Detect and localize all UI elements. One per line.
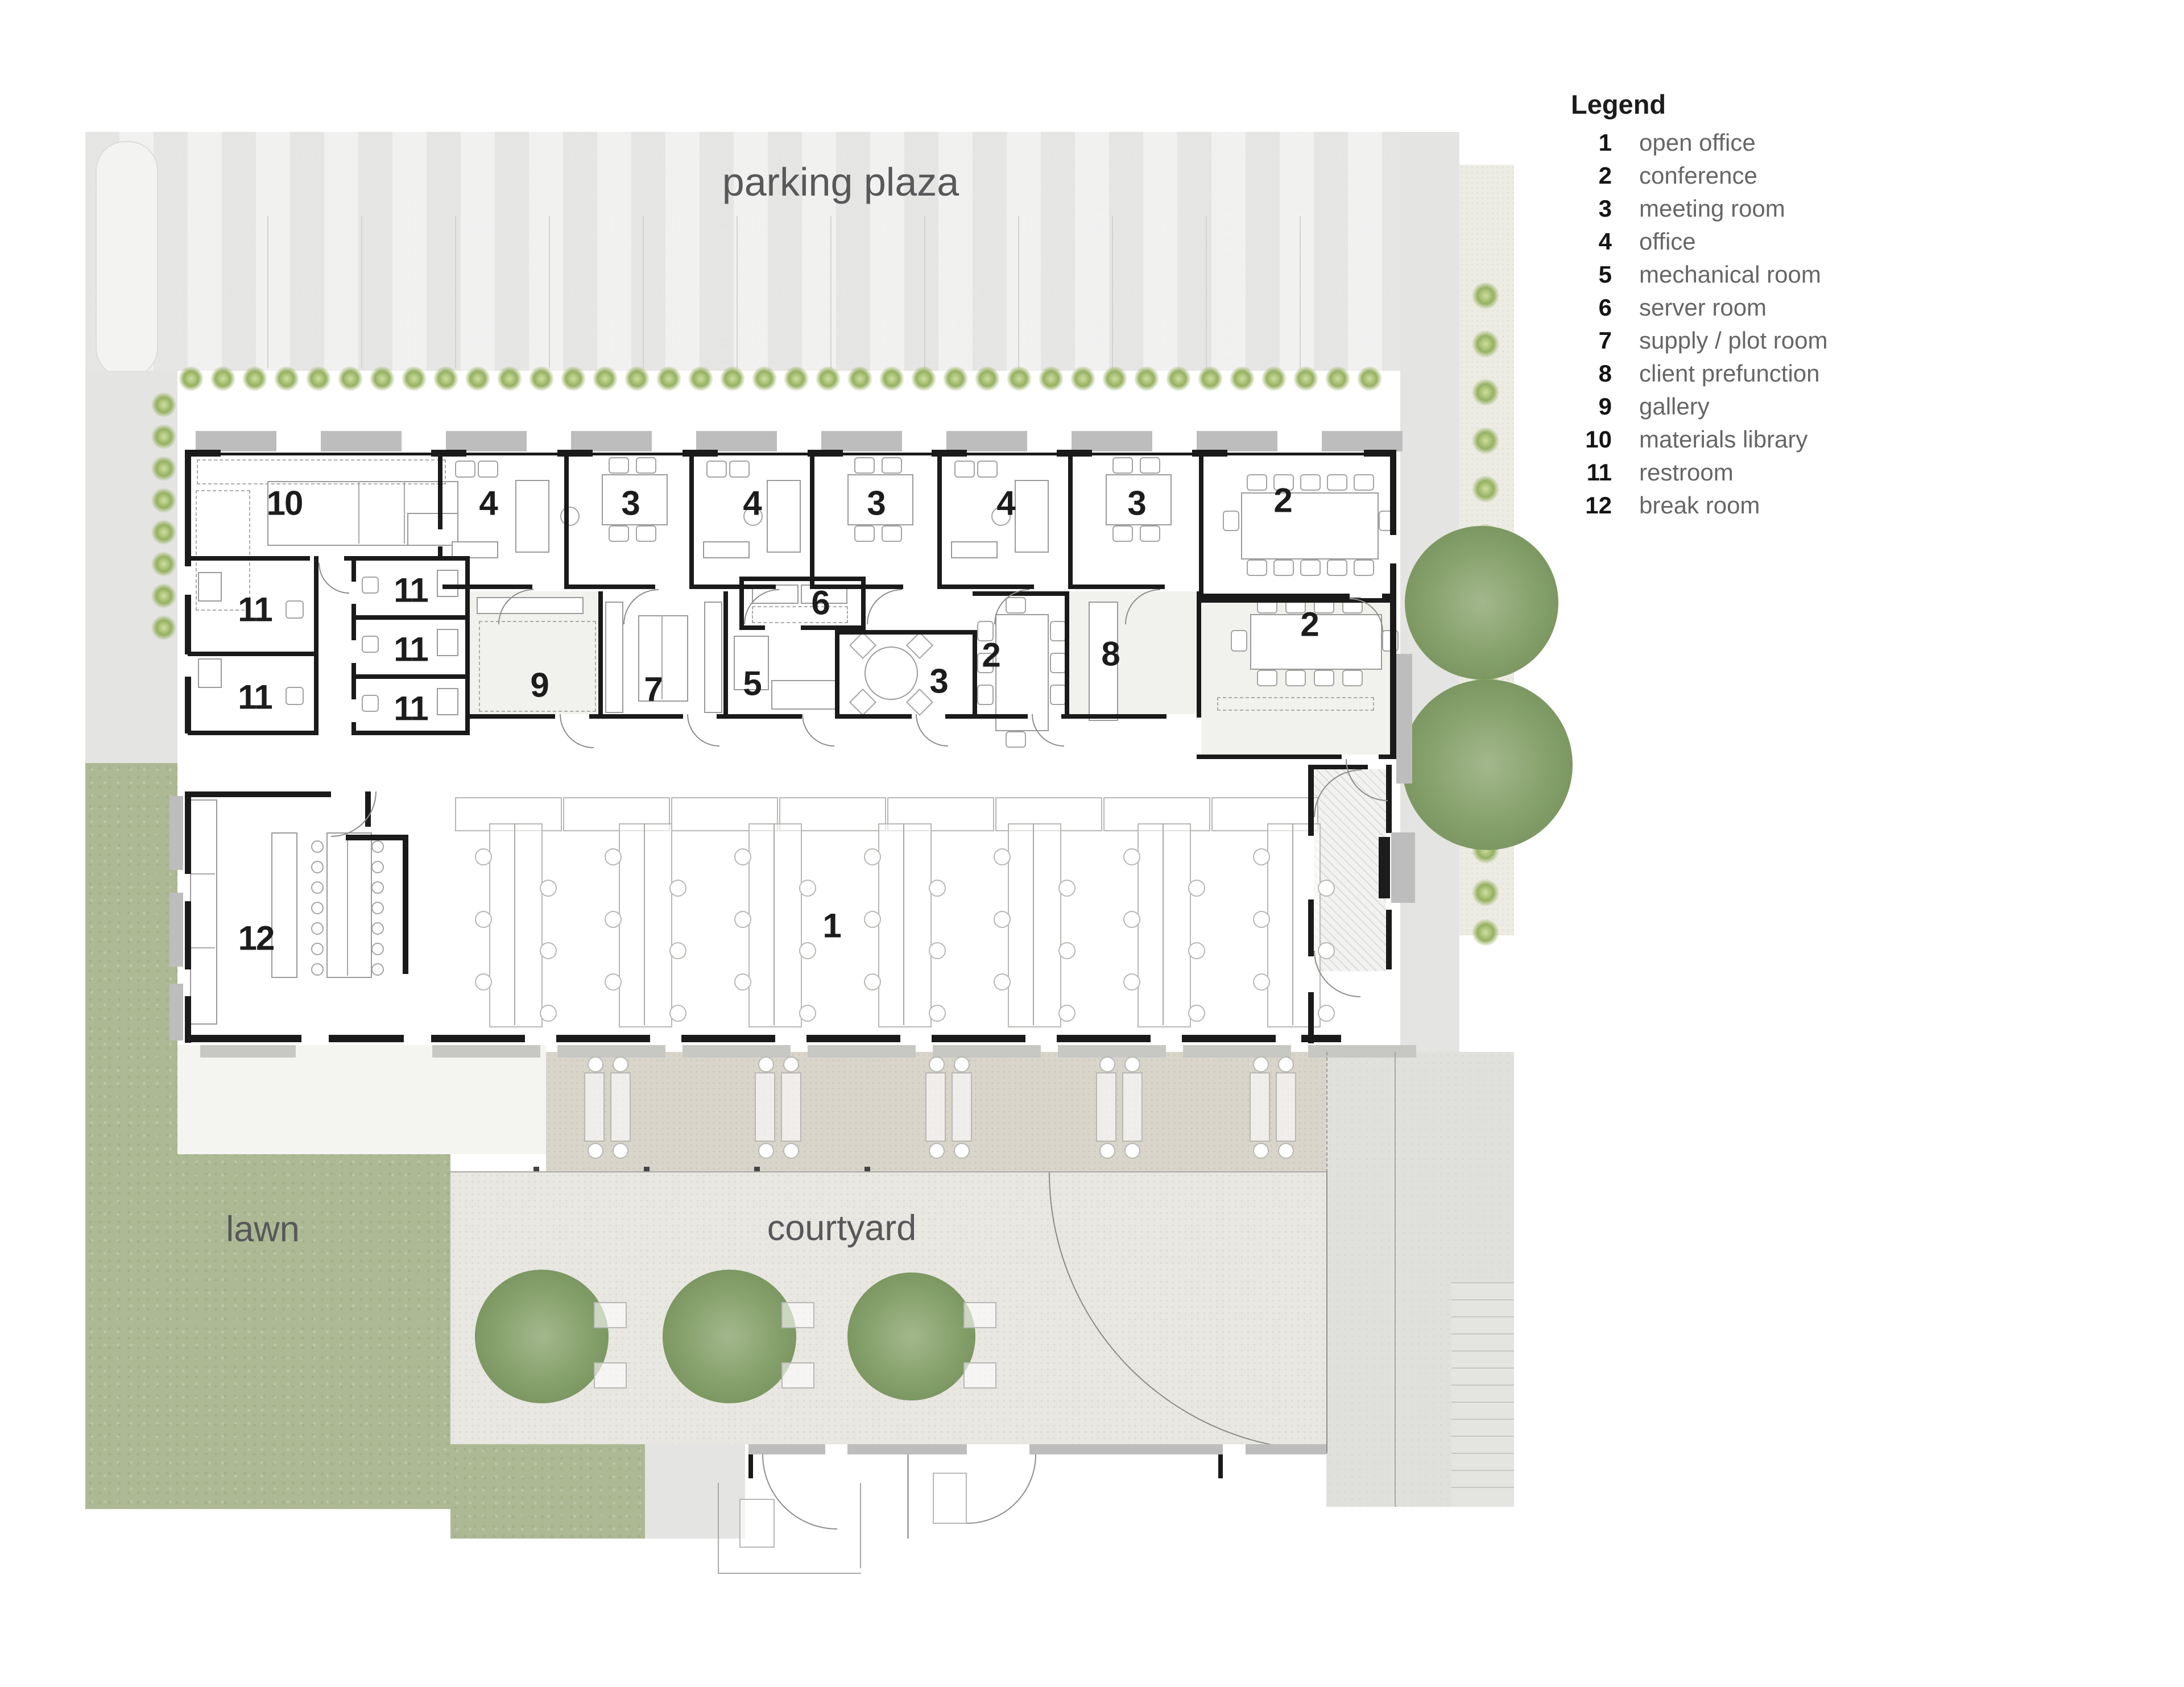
wall-fragment <box>718 1573 861 1574</box>
wall <box>470 714 555 719</box>
outdoor-bench <box>594 1302 627 1328</box>
outdoor-bench <box>963 1362 996 1388</box>
wall <box>1199 594 1350 598</box>
legend-item-label: server room <box>1612 294 1767 321</box>
chair <box>1318 1005 1335 1022</box>
stair-tread <box>1451 1316 1514 1317</box>
chair <box>540 942 557 959</box>
outdoor-table <box>1276 1072 1296 1142</box>
stair-tread <box>1451 1367 1514 1369</box>
wall <box>589 714 683 719</box>
tree-icon <box>1405 526 1558 679</box>
toilet <box>198 658 222 688</box>
chair <box>1327 559 1347 576</box>
parking-stall-line <box>830 216 832 368</box>
chair <box>954 461 975 478</box>
wall <box>185 901 191 969</box>
sink <box>286 687 304 705</box>
chair <box>1300 474 1321 491</box>
room-label-4-office: 4 <box>743 484 760 523</box>
chair <box>475 911 492 928</box>
wall <box>557 450 593 457</box>
stool <box>311 963 324 976</box>
stair-tread <box>1451 1282 1514 1283</box>
wall <box>1382 594 1396 598</box>
shrub-icon <box>179 366 204 391</box>
outdoor-table <box>925 1072 946 1142</box>
cluster-divider <box>1033 823 1034 1025</box>
room-label-11-restroom: 11 <box>238 590 271 629</box>
parking-stall-line <box>549 216 550 368</box>
wall <box>185 1035 301 1042</box>
wall <box>1301 1035 1341 1042</box>
legend-item-number: 6 <box>1571 294 1612 321</box>
legend-item-label: open office <box>1612 129 1756 156</box>
wall <box>810 453 814 589</box>
chair <box>1099 1056 1115 1072</box>
legend-item: 4office <box>1571 228 1828 261</box>
wall <box>185 791 191 874</box>
outdoor-table <box>1096 1072 1116 1142</box>
chair <box>669 1005 686 1022</box>
facade-band <box>847 1444 967 1454</box>
stair-tread <box>1451 1487 1514 1488</box>
shrub-icon <box>1198 366 1223 391</box>
shrub-icon <box>151 520 176 545</box>
shrub-icon <box>151 424 176 449</box>
outdoor-table <box>584 1072 605 1142</box>
chair <box>605 911 622 928</box>
wall <box>681 1035 775 1042</box>
cluster-divider <box>903 823 904 1025</box>
workstation-cluster <box>1008 823 1061 1027</box>
chair <box>1273 559 1294 576</box>
entry-door-slab <box>1379 837 1390 898</box>
legend-item-number: 10 <box>1571 426 1612 453</box>
wall <box>188 731 318 735</box>
chair <box>669 942 686 959</box>
wall <box>351 731 470 735</box>
wall-fragment <box>860 1483 861 1568</box>
wall <box>694 585 776 589</box>
legend-item-label: conference <box>1612 162 1757 189</box>
wall-fragment <box>718 1483 719 1574</box>
legend-item: 11restroom <box>1571 459 1828 492</box>
wall <box>346 835 408 840</box>
wall <box>564 453 569 589</box>
workstation-cluster <box>619 823 672 1027</box>
wall <box>806 1035 900 1042</box>
wall <box>1197 755 1342 759</box>
shrub-icon <box>720 366 745 391</box>
chair <box>1050 621 1066 641</box>
table <box>407 513 458 546</box>
credenza <box>951 541 998 558</box>
legend-item-label: break room <box>1612 492 1760 519</box>
shrub-icon <box>816 366 841 391</box>
wall <box>351 674 468 679</box>
wall <box>431 450 466 457</box>
toilet <box>933 1473 967 1524</box>
table-line <box>404 481 405 544</box>
legend-item-number: 3 <box>1571 195 1612 222</box>
entry-canopy <box>1391 832 1415 903</box>
chair <box>994 973 1011 990</box>
canopy-band <box>1197 431 1277 451</box>
shrub-icon <box>911 366 936 391</box>
wall <box>403 835 408 974</box>
outdoor-bench <box>963 1302 996 1328</box>
room-label-6-server-room: 6 <box>811 583 829 623</box>
chair <box>799 942 816 959</box>
stool <box>371 881 384 894</box>
workstation-cluster <box>748 823 802 1027</box>
shrub-icon <box>1472 427 1499 454</box>
stool <box>371 840 384 853</box>
shrub-icon <box>497 366 522 391</box>
canopy-band <box>1322 431 1403 451</box>
outdoor-table <box>781 1072 801 1142</box>
stair-tread <box>1451 1453 1514 1454</box>
lawn-area-south <box>450 1444 645 1539</box>
room-label-11-restroom: 11 <box>238 678 271 717</box>
parking-stall-line <box>1300 216 1301 368</box>
chair <box>977 461 998 478</box>
shrub-icon <box>1166 366 1191 391</box>
chair <box>1140 457 1160 474</box>
shrub-icon <box>847 366 872 391</box>
chair <box>1247 559 1267 576</box>
wall <box>431 1035 525 1042</box>
canopy-band <box>446 431 527 451</box>
wall <box>556 1035 650 1042</box>
wall <box>835 714 912 719</box>
chair <box>475 848 492 865</box>
cluster-divider <box>773 823 775 1025</box>
chair <box>613 1056 628 1072</box>
outdoor-bench <box>781 1362 814 1388</box>
shrub-icon <box>402 366 427 391</box>
sill-band <box>557 1045 665 1058</box>
chair <box>854 525 875 542</box>
legend-item-label: meeting room <box>1612 195 1785 222</box>
chair <box>636 525 656 542</box>
shrub-icon <box>688 366 713 391</box>
tree-icon <box>847 1272 975 1400</box>
room-label-2-conference: 2 <box>982 636 999 675</box>
chair <box>609 525 629 542</box>
wall <box>1065 591 1069 718</box>
chair <box>1124 1056 1140 1072</box>
credenza <box>1217 697 1374 711</box>
wall <box>314 556 318 735</box>
chair <box>1058 880 1076 897</box>
shrub-icon <box>1325 366 1350 391</box>
sill-band <box>200 1045 296 1058</box>
wall <box>1390 450 1396 535</box>
stool <box>371 902 384 914</box>
legend-item-number: 8 <box>1571 360 1612 387</box>
wall <box>438 453 442 529</box>
legend-item-number: 9 <box>1571 393 1612 420</box>
chair <box>478 461 498 478</box>
toilet <box>437 688 458 715</box>
chair <box>1253 848 1270 865</box>
parking-stall-line <box>737 216 738 368</box>
chair <box>1140 525 1160 542</box>
chair <box>1253 1056 1269 1072</box>
shrub-icon <box>1230 366 1255 391</box>
toilet <box>437 570 458 597</box>
shrub-icon <box>151 583 176 608</box>
wall <box>1386 910 1392 969</box>
stair-tread <box>1451 1419 1514 1420</box>
outdoor-table <box>1122 1072 1143 1142</box>
legend-item-number: 11 <box>1571 459 1612 486</box>
chair <box>588 1056 603 1072</box>
chair <box>1058 942 1076 959</box>
table-line <box>358 481 359 544</box>
cluster-divider <box>514 823 515 1025</box>
legend-item-label: gallery <box>1612 393 1710 420</box>
shrub-icon <box>210 366 235 391</box>
chair <box>758 1143 774 1159</box>
wall <box>442 585 532 589</box>
sill-band <box>1183 1045 1291 1058</box>
shrub-icon <box>274 366 299 391</box>
sink <box>286 600 304 619</box>
chair <box>977 685 994 705</box>
chair <box>613 1143 628 1159</box>
canopy-band <box>946 431 1027 451</box>
facade-band <box>1029 1444 1223 1454</box>
equipment <box>771 680 837 710</box>
chair <box>669 880 686 897</box>
round-table <box>864 646 918 700</box>
room-label-11-restroom: 11 <box>394 571 427 610</box>
chair <box>1247 474 1267 491</box>
chair <box>734 848 751 865</box>
tree-icon <box>475 1270 609 1403</box>
shrub-icon <box>1472 282 1499 309</box>
stair-tread <box>1451 1333 1514 1334</box>
parking-stall-line <box>1112 216 1113 368</box>
wall <box>188 652 317 656</box>
room-label-11-restroom: 11 <box>394 689 427 728</box>
shrub-icon <box>1134 366 1159 391</box>
table-line <box>347 832 348 976</box>
outdoor-table <box>755 1072 775 1142</box>
chair <box>1257 670 1277 686</box>
chair <box>994 911 1011 928</box>
chair <box>1112 525 1133 542</box>
shrub-icon <box>1472 475 1499 503</box>
shrub-icon <box>561 366 586 391</box>
chair <box>1123 911 1140 928</box>
stair-tread <box>1451 1385 1514 1386</box>
facade-band <box>1246 1444 1326 1454</box>
room-label-4-office: 4 <box>479 484 497 523</box>
wall <box>351 556 468 561</box>
stool <box>371 943 384 955</box>
facade-band <box>169 893 183 967</box>
shrub-icon <box>943 366 968 391</box>
break-table <box>326 832 372 978</box>
chair <box>540 1005 557 1022</box>
tree-icon <box>1402 679 1573 850</box>
legend-item: 3meeting room <box>1571 195 1828 228</box>
wall <box>1308 900 1314 956</box>
stair-tread <box>1451 1299 1514 1300</box>
parking-stall-line <box>361 216 362 368</box>
chair <box>929 942 946 959</box>
parking-stall-line <box>455 216 456 368</box>
shrub-icon <box>529 366 554 391</box>
shrub-icon <box>151 615 176 640</box>
chair <box>799 1005 816 1022</box>
chair <box>994 848 1011 865</box>
wall <box>1218 1454 1223 1478</box>
room-label-3-meeting-room: 3 <box>621 484 639 523</box>
outdoor-table <box>1250 1072 1270 1142</box>
conference-table <box>1241 492 1379 559</box>
shrub-icon <box>1293 366 1318 391</box>
chair <box>734 911 751 928</box>
shrub-icon <box>1472 379 1499 406</box>
sink <box>362 636 379 653</box>
office-desk <box>767 480 801 553</box>
wall <box>861 577 866 630</box>
wall <box>1308 765 1314 836</box>
wall <box>465 556 470 735</box>
room-label-8-client-prefunction: 8 <box>1101 635 1119 674</box>
room-label-2-conference: 2 <box>1300 605 1318 644</box>
wall <box>598 591 603 718</box>
fixture <box>739 1499 775 1548</box>
workstation-cluster <box>489 823 543 1027</box>
shrub-icon <box>1102 366 1127 391</box>
stool <box>311 861 324 873</box>
chair <box>864 848 881 865</box>
canopy-band <box>696 431 777 451</box>
room-label-4-office: 4 <box>996 484 1014 523</box>
wall <box>717 714 802 719</box>
chair <box>929 880 946 897</box>
toilet <box>198 572 222 602</box>
wall <box>185 677 191 733</box>
office-desk <box>515 480 549 553</box>
sill-band <box>1308 1045 1416 1058</box>
chair <box>929 1005 946 1022</box>
tree-icon <box>663 1270 796 1403</box>
chair <box>1285 670 1306 686</box>
wall <box>1199 453 1203 598</box>
chair <box>882 457 902 474</box>
chair <box>1318 880 1335 897</box>
shrub-icon <box>151 456 176 481</box>
legend-item-number: 1 <box>1571 129 1612 156</box>
wall <box>1197 591 1201 718</box>
chair <box>1058 1005 1076 1022</box>
wall <box>1379 755 1396 759</box>
gate-line-dashed <box>1326 1052 1327 1172</box>
legend-item-label: mechanical room <box>1612 261 1821 288</box>
wall <box>188 791 331 797</box>
lawn-label: lawn <box>226 1209 300 1250</box>
legend: Legend 1open office2conference3meeting r… <box>1571 89 1828 525</box>
chair <box>1327 474 1347 491</box>
stool <box>371 861 384 873</box>
stool <box>311 922 324 935</box>
wall <box>351 604 356 640</box>
shrub-icon <box>752 366 777 391</box>
facade-band <box>1396 654 1412 784</box>
shrub-icon <box>975 366 1000 391</box>
shrub-icon <box>433 366 458 391</box>
sink <box>362 695 379 712</box>
counter <box>197 459 446 484</box>
chair <box>954 1143 970 1159</box>
chair <box>706 461 727 478</box>
canopy-band <box>196 431 276 451</box>
legend-item-number: 2 <box>1571 162 1612 189</box>
facade-band <box>169 796 183 870</box>
shrub-icon <box>242 366 267 391</box>
stair-tread <box>1451 1436 1514 1437</box>
chair <box>1124 1143 1140 1159</box>
outdoor-table <box>952 1072 972 1142</box>
office-desk <box>1015 480 1049 553</box>
wall <box>569 585 655 589</box>
parking-stall-line <box>1018 216 1019 368</box>
wall <box>835 630 839 718</box>
workstation-cluster <box>1137 823 1191 1027</box>
shrub-icon <box>465 366 490 391</box>
legend-item-number: 7 <box>1571 327 1612 354</box>
shrub-icon <box>879 366 904 391</box>
chair <box>1354 474 1374 491</box>
parking-plaza-label: parking plaza <box>722 159 959 205</box>
chair <box>929 1056 945 1072</box>
legend-item-label: office <box>1612 228 1696 255</box>
chair <box>954 1056 970 1072</box>
stool <box>371 963 384 976</box>
stool <box>311 943 324 955</box>
wall <box>748 1454 753 1478</box>
chair <box>783 1056 799 1072</box>
room-label-1-open-office: 1 <box>822 906 840 946</box>
legend-item-number: 4 <box>1571 228 1612 255</box>
sill-band <box>1058 1045 1166 1058</box>
counter-line <box>190 873 215 874</box>
chair <box>734 973 751 990</box>
chair <box>1300 559 1321 576</box>
south-path <box>645 1444 745 1539</box>
chair <box>1050 653 1066 673</box>
counter-line <box>190 947 215 948</box>
chair <box>605 973 622 990</box>
facade-band <box>169 984 183 1041</box>
legend-item-label: client prefunction <box>1612 360 1820 387</box>
wall <box>1192 450 1227 457</box>
wall <box>1390 563 1396 598</box>
shrub-icon <box>1357 366 1382 391</box>
chair <box>854 457 875 474</box>
canopy-band <box>821 431 902 451</box>
chair <box>1112 457 1133 474</box>
chair <box>636 457 656 474</box>
shelving <box>605 602 623 713</box>
